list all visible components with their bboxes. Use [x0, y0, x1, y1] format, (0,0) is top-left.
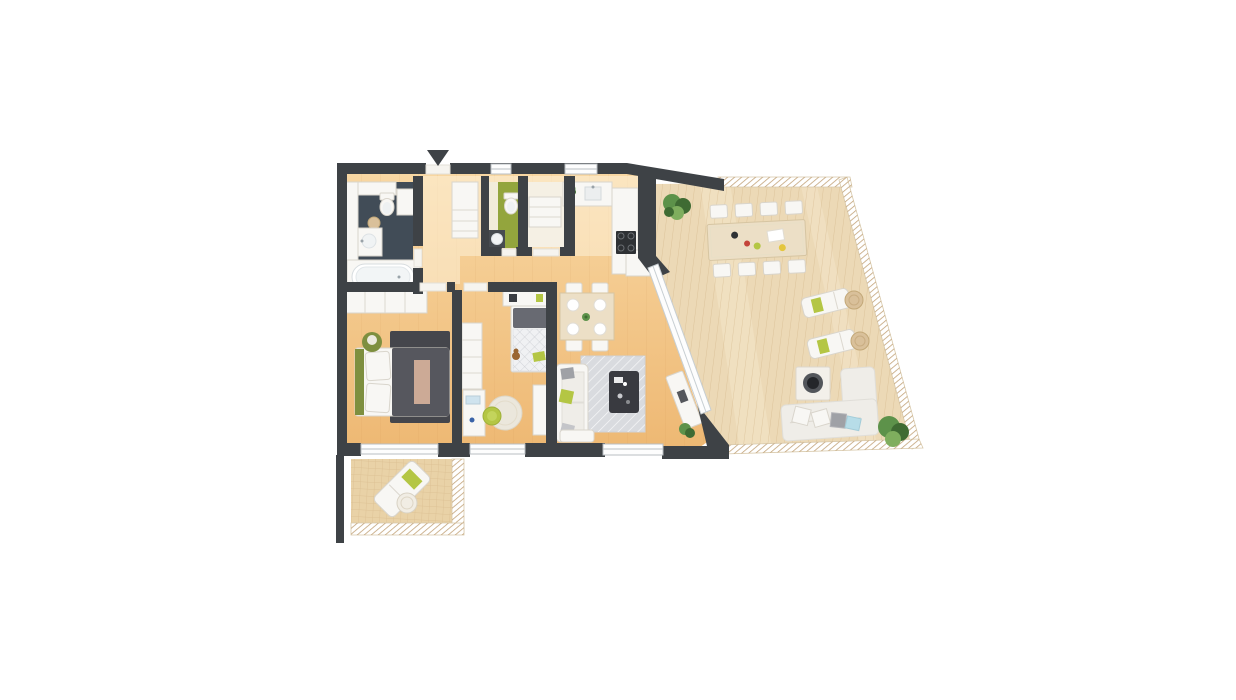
balcony-railing-bottom-hatch [351, 523, 464, 535]
floor-plan-svg [0, 0, 1236, 700]
terrace-chair [785, 201, 803, 215]
wall-kids-top [488, 282, 554, 292]
plate [567, 299, 579, 311]
bathroom-door-sill [414, 249, 422, 267]
wall-bathroom-divider-upper [413, 176, 423, 246]
entrance-threshold [426, 165, 450, 174]
headboard-decor [536, 294, 543, 302]
bedroom-pouf-top [367, 335, 377, 345]
sofa-pillow-blue [845, 416, 861, 431]
floor-plan-canvas [0, 0, 1236, 700]
bathroom-tall-cabinet [346, 182, 358, 260]
plant-leaf [664, 207, 674, 217]
terrace-chair [713, 263, 731, 277]
kids-door-sill [464, 283, 487, 291]
desk-decor [466, 396, 480, 404]
sink-basin [362, 234, 376, 248]
kids-shelf [462, 323, 482, 389]
window-bedroom-balcony [361, 444, 438, 454]
dining-chair [566, 339, 582, 351]
terrace-chair [710, 205, 728, 219]
hallway-closet [452, 182, 478, 238]
sofa-pillow-gray [830, 413, 846, 428]
sofa-pillow-green [559, 389, 574, 404]
balcony-basket [397, 493, 417, 513]
sink-faucet [361, 240, 364, 243]
plate [567, 323, 579, 335]
terrace-chair [763, 261, 781, 275]
wall-storage-right [564, 176, 575, 254]
bathroom [346, 182, 420, 294]
wall-balcony-left [336, 455, 344, 543]
wall-kids-living [546, 282, 557, 443]
fire-bowl [807, 377, 819, 389]
bedroom-door-sill [420, 283, 446, 291]
sofa-ottoman [560, 430, 594, 442]
terrace-chair [788, 260, 806, 274]
kids-wardrobe [533, 385, 548, 435]
coffee-table-decor [623, 382, 627, 386]
window-kids-room [470, 444, 525, 454]
desk-decor [470, 418, 475, 423]
wall-bedroom-kids [452, 290, 462, 443]
kids-chair-seat [487, 411, 497, 421]
bed-headboard [355, 349, 364, 415]
bed-pillow [365, 351, 391, 381]
kitchen-faucet [592, 186, 595, 189]
coffee-table-decor [626, 400, 630, 404]
hallway-floor [423, 256, 460, 284]
bed-pillow [365, 383, 391, 413]
storage-door-sill [533, 249, 559, 256]
window-wc-top [491, 164, 511, 174]
plate [594, 299, 606, 311]
wall-hall-bottom-3 [560, 247, 575, 256]
kitchen-sink [585, 187, 601, 200]
terrace-chair [735, 203, 753, 217]
sofa-pillow [792, 406, 811, 425]
dining-chair [592, 339, 608, 351]
wall-bottom-1 [337, 443, 361, 456]
wall-bottom-3 [525, 443, 605, 457]
wicker-pouf [845, 291, 863, 309]
wc-door-sill [502, 249, 516, 256]
wall-top-left [337, 163, 426, 174]
wall-hall-bottom-1 [481, 247, 502, 256]
wc [489, 182, 518, 248]
table-decor-papers [767, 229, 785, 242]
wall-left [337, 163, 347, 455]
kids-duvet [513, 308, 551, 328]
terrace-chair [760, 202, 778, 216]
wall-bedroom-top-a [347, 282, 418, 292]
laundry-basket [368, 217, 380, 229]
sofa-pillow-gray [560, 367, 574, 380]
storage-shelf [529, 197, 561, 227]
plant-leaf [885, 431, 901, 447]
toilet-seat [507, 202, 515, 213]
coffee-table-decor [618, 394, 623, 399]
coffee-table-decor [614, 377, 623, 383]
balcony [351, 459, 464, 535]
wall-wc-left [481, 176, 489, 252]
terrace-dining-table [707, 219, 807, 260]
entrance-arrow-icon [427, 150, 449, 166]
bathroom-washer [397, 189, 414, 215]
kids-blanket-pattern [513, 329, 551, 371]
headboard-decor [509, 294, 517, 302]
wc-sink-basin [492, 234, 503, 245]
terrace-chair [738, 262, 756, 276]
wicker-pouf [851, 332, 869, 350]
terrace-railing-top-hatch [718, 177, 852, 187]
window-living-room [603, 444, 663, 455]
toilet-seat [383, 202, 392, 214]
wall-bottom-2 [438, 443, 470, 457]
living-plant-leaf [685, 428, 695, 438]
bathtub-drain [398, 276, 401, 279]
storage [528, 182, 564, 247]
table-centerpiece-pot [585, 316, 588, 319]
coffee-table [609, 371, 639, 413]
teddy-bear-head [514, 349, 519, 354]
balcony-railing-right-hatch [452, 459, 464, 533]
wall-wc-right [518, 176, 528, 252]
bed-throw [414, 360, 430, 404]
plate [594, 323, 606, 335]
wall-hall-bottom-2 [516, 247, 532, 256]
window-kitchen-top [565, 164, 597, 174]
